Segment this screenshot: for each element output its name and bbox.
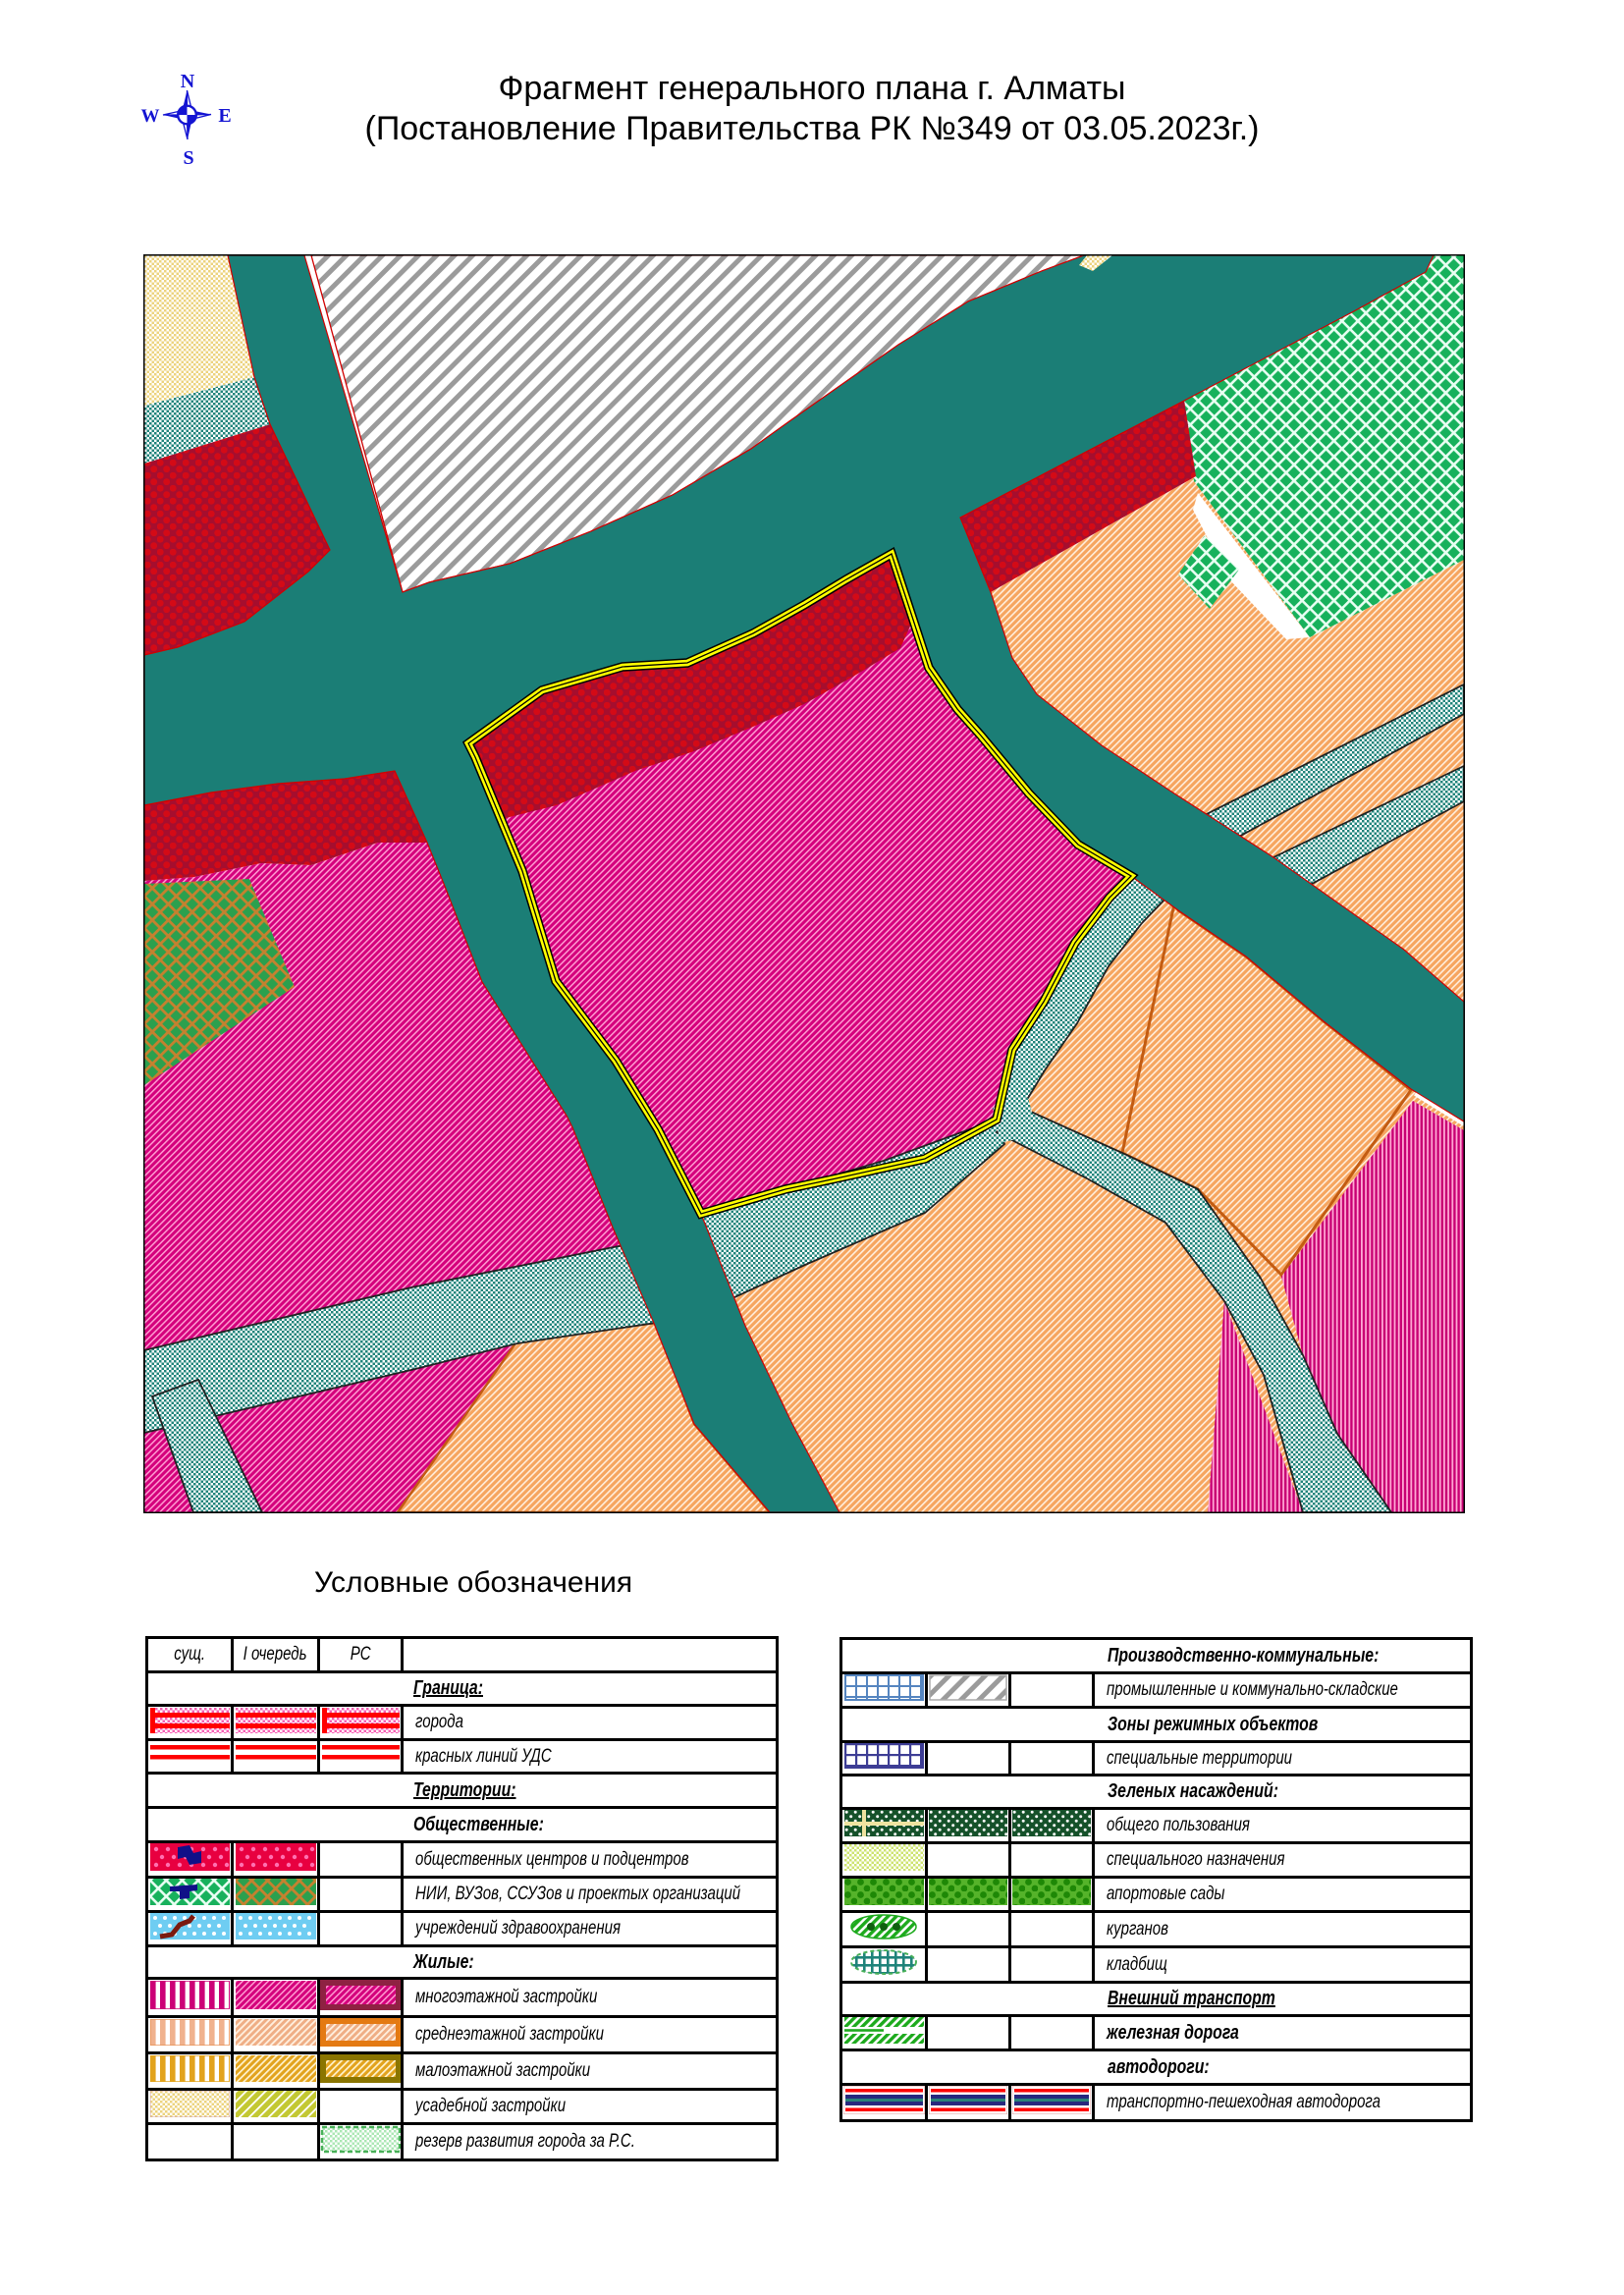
svg-text:S: S [183,147,193,169]
